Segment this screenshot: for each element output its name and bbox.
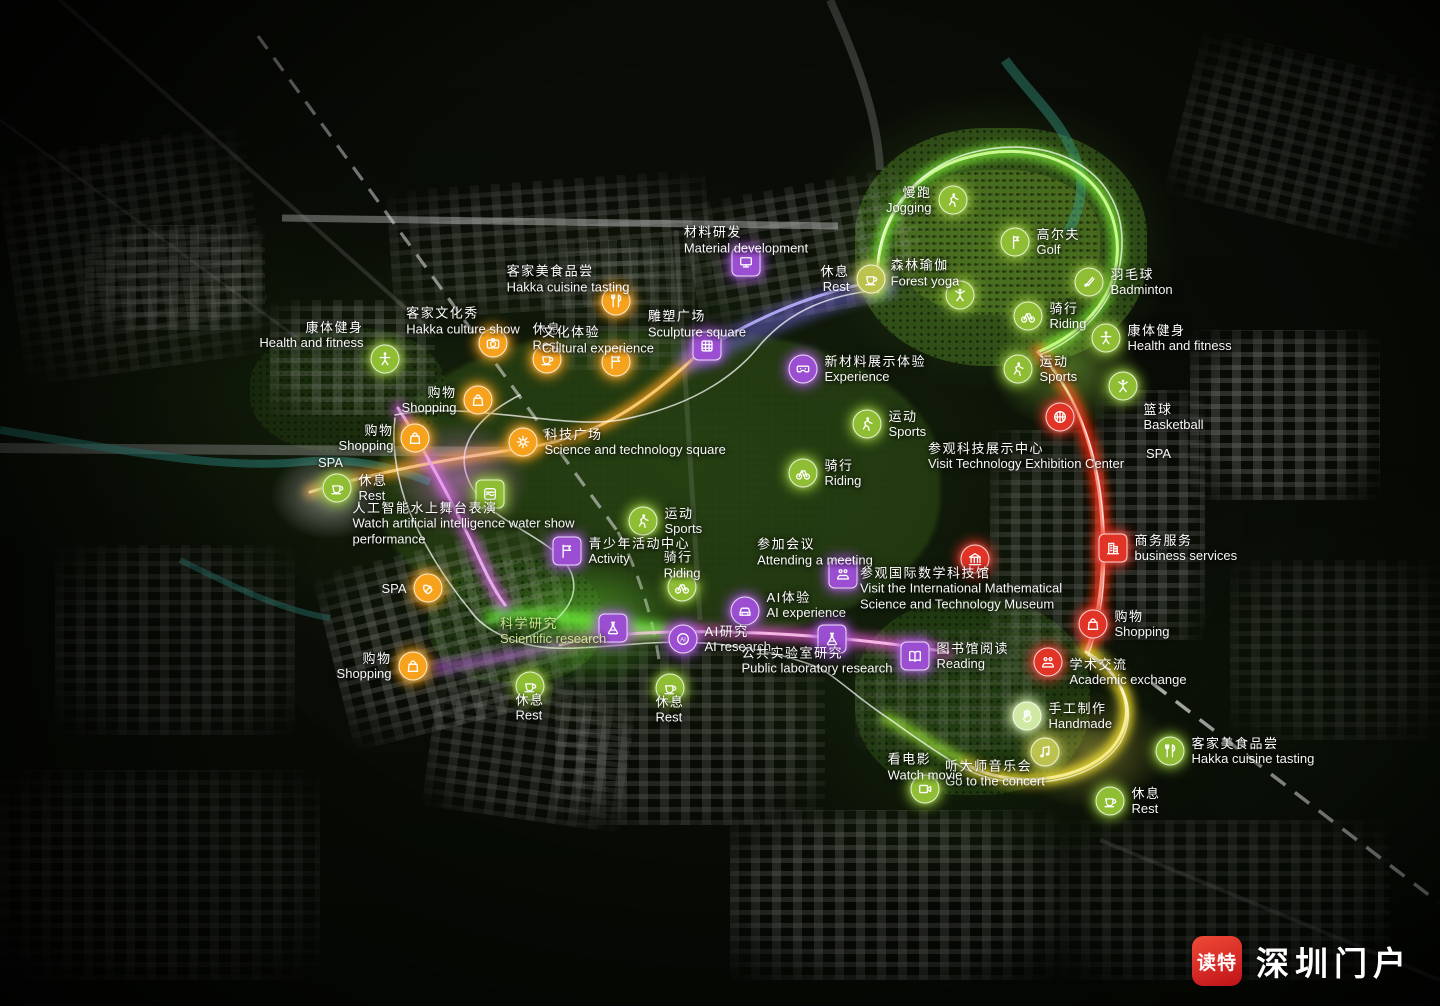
site-name-text: 深圳门户	[1256, 937, 1412, 985]
poi-label: 看电影Watch movie	[888, 752, 963, 783]
poi-riding-center: 骑行Riding	[789, 459, 818, 488]
poi-hakka-cuisine-right: 客家美食品尝Hakka cuisine tasting	[1156, 737, 1185, 766]
golf-flag-icon	[1001, 228, 1030, 257]
poi-label: 购物Shopping	[402, 385, 457, 416]
poi-health-fitness-right: 康体健身Health and fitness	[1092, 324, 1121, 353]
poi-label: 康体健身Health and fitness	[259, 320, 363, 351]
poi-shopping-right: 购物Shopping	[1079, 610, 1108, 639]
poi-label: 参加会议Attending a meeting	[757, 537, 873, 568]
poi-label: 休息Rest	[820, 264, 849, 295]
poi-label: 文化体验Cultural experience	[542, 325, 654, 356]
car-icon	[731, 597, 760, 626]
poi-math-museum: 参观国际数学科技馆Visit the International Mathema…	[961, 545, 990, 574]
poi-shopping-bottom-left: 购物Shopping	[399, 652, 428, 681]
shopping-bag-icon	[464, 386, 493, 415]
poi-label: SPA	[318, 455, 343, 470]
spa-leaf-icon	[414, 574, 443, 603]
poi-label: 商务服务business services	[1135, 533, 1238, 564]
poi-ai-experience: AI体验AI experience	[731, 597, 760, 626]
poi-label: 材料研发Material development	[684, 225, 808, 256]
poi-golf: 高尔夫Golf	[1001, 228, 1030, 257]
poi-label: 休息Rest	[515, 693, 544, 724]
cutlery-icon	[1156, 737, 1185, 766]
poi-label: 休息Rest	[1132, 786, 1161, 817]
poi-spa-right: SPA	[1146, 446, 1171, 461]
svg-text:AI: AI	[680, 637, 686, 643]
runner-icon	[939, 186, 968, 215]
poi-label: 科技广场Science and technology square	[545, 427, 726, 458]
poi-riding-top: 骑行Riding	[1014, 302, 1043, 331]
poi-sculpture-square: 雕塑广场Sculpture square	[693, 332, 722, 361]
poi-basketball: 篮球Basketball	[1046, 403, 1075, 432]
hand-icon	[1013, 702, 1042, 731]
poi-label: 新材料展示体验Experience	[825, 354, 927, 385]
shopping-bag-icon	[1079, 610, 1108, 639]
poi-forest-yoga: 森林瑜伽Forest yoga	[946, 281, 975, 310]
app-badge-text: 读特	[1197, 948, 1237, 975]
poi-health-fitness-left: 康体健身Health and fitness	[371, 345, 400, 374]
poi-dancer	[1109, 372, 1138, 401]
dancer-icon	[1109, 372, 1138, 401]
poi-reading: 图书馆阅读Reading	[901, 642, 930, 671]
poi-label: 科学研究Scientific research	[500, 616, 606, 647]
poi-markers-layer: 慢跑Jogging高尔夫Golf森林瑜伽Forest yoga羽毛球Badmin…	[0, 0, 1440, 1006]
poi-cultural-experience: 文化体验Cultural experience	[602, 348, 631, 377]
dutenews-logo-icon: 读特	[1192, 936, 1242, 986]
poi-academic-exchange: 学术交流Academic exchange	[1034, 648, 1063, 677]
poi-label: 参观科技展示中心Visit Technology Exhibition Cent…	[928, 441, 1124, 472]
poi-scientific-research: 科学研究Scientific research	[500, 616, 606, 647]
shuttlecock-icon	[1075, 268, 1104, 297]
poi-handmade: 手工制作Handmade	[1013, 702, 1042, 731]
poi-label: 森林瑜伽Forest yoga	[891, 258, 960, 289]
poi-shopping-left-lower: 购物Shopping	[401, 424, 430, 453]
poi-label: 慢跑Jogging	[886, 185, 932, 216]
poi-rest-bottom-left: 休息Rest	[516, 672, 545, 701]
poi-rest-bottom-right: 休息Rest	[1096, 787, 1125, 816]
sports-icon	[1004, 355, 1033, 384]
poi-shopping-left-upper: 购物Shopping	[464, 386, 493, 415]
poi-label: 篮球Basketball	[1144, 402, 1204, 433]
basketball-icon	[1046, 403, 1075, 432]
shopping-bag-icon	[401, 424, 430, 453]
poi-rest-left: 休息Rest	[323, 474, 352, 503]
fitness-icon	[1092, 324, 1121, 353]
poi-science-square: 科技广场Science and technology square	[509, 428, 538, 457]
sports-icon	[853, 410, 882, 439]
poi-hakka-culture-show: 客家文化秀Hakka culture show	[479, 329, 508, 358]
poi-sports-lower: 运动Sports	[629, 507, 658, 536]
poi-sports-center: 运动Sports	[853, 410, 882, 439]
poi-visit-tech-center: 参观科技展示中心Visit Technology Exhibition Cent…	[928, 441, 1124, 472]
ai-brain-icon: AI	[669, 625, 698, 654]
poi-spa-bottom: SPA	[414, 574, 443, 603]
poi-label: 羽毛球Badminton	[1111, 267, 1173, 298]
poi-riding-lower: 骑行Riding	[668, 573, 697, 602]
night-planning-map: 慢跑Jogging高尔夫Golf森林瑜伽Forest yoga羽毛球Badmin…	[0, 0, 1440, 1006]
poi-label: 骑行Riding	[1050, 301, 1087, 332]
poi-rest-center-bottom: 休息Rest	[656, 674, 685, 703]
poi-experience-materials: 新材料展示体验Experience	[789, 355, 818, 384]
poi-label: 雕塑广场Sculpture square	[648, 309, 746, 340]
bicycle-icon	[789, 459, 818, 488]
poi-water-show: 人工智能水上舞台表演Watch artificial intelligence …	[476, 480, 505, 509]
poi-label: 参观国际数学科技馆Visit the International Mathema…	[860, 566, 1090, 612]
gear-icon	[509, 428, 538, 457]
poi-hakka-cuisine-top: 客家美食品尝Hakka cuisine tasting	[602, 287, 631, 316]
poi-rest-top: 休息Rest	[857, 265, 886, 294]
poi-label: 休息Rest	[655, 695, 684, 726]
book-icon	[901, 642, 930, 671]
rest-cup-icon	[1096, 787, 1125, 816]
poi-label: 学术交流Academic exchange	[1070, 657, 1187, 688]
rest-cup-icon	[323, 474, 352, 503]
poi-label: 购物Shopping	[339, 423, 394, 454]
poi-badminton: 羽毛球Badminton	[1075, 268, 1104, 297]
poi-watch-movie: 看电影Watch movie	[911, 775, 940, 804]
site-watermark: 读特 深圳门户	[1192, 936, 1412, 986]
bicycle-icon	[1014, 302, 1043, 331]
sports-icon	[629, 507, 658, 536]
poi-ai-research: AIAI研究AI research	[669, 625, 698, 654]
fitness-icon	[371, 345, 400, 374]
poi-label: 运动Sports	[665, 506, 703, 537]
poi-spa-left: SPA	[318, 455, 343, 470]
poi-label: 公共实验室研究Public laboratory research	[741, 646, 892, 677]
poi-label: 客家美食品尝Hakka cuisine tasting	[507, 264, 630, 295]
shopping-bag-icon	[399, 652, 428, 681]
poi-label: 客家文化秀Hakka culture show	[406, 306, 519, 337]
poi-sports-right: 运动Sports	[1004, 355, 1033, 384]
poi-label: 图书馆阅读Reading	[937, 641, 1010, 672]
poi-public-lab: 公共实验室研究Public laboratory research	[818, 625, 847, 654]
poi-label: 客家美食品尝Hakka cuisine tasting	[1192, 736, 1315, 767]
poi-label: SPA	[1146, 446, 1171, 461]
poi-label: 骑行Riding	[825, 458, 862, 489]
rest-cup-icon	[857, 265, 886, 294]
poi-business-services: 商务服务business services	[1099, 534, 1128, 563]
poi-concert: 听大师音乐会Go to the concert	[1031, 738, 1060, 767]
poi-label: AI体验AI experience	[767, 590, 847, 621]
poi-label: 休息Rest	[359, 473, 388, 504]
poi-label: 购物Shopping	[1115, 609, 1170, 640]
poi-material-development: 材料研发Material development	[732, 248, 761, 277]
poi-label: 手工制作Handmade	[1049, 701, 1113, 732]
poi-label: 青少年活动中心Activity	[589, 536, 691, 567]
poi-jogging: 慢跑Jogging	[939, 186, 968, 215]
poi-label: 运动Sports	[889, 409, 927, 440]
poi-attending-meeting: 参加会议Attending a meeting	[829, 560, 858, 589]
poi-label: 人工智能水上舞台表演Watch artificial intelligence …	[353, 501, 588, 547]
meeting-icon	[1034, 648, 1063, 677]
vr-goggles-icon	[789, 355, 818, 384]
poi-label: 运动Sports	[1040, 354, 1078, 385]
poi-label: 康体健身Health and fitness	[1128, 323, 1232, 354]
building-icon	[1099, 534, 1128, 563]
poi-label: SPA	[381, 580, 406, 595]
poi-label: 高尔夫Golf	[1037, 227, 1081, 258]
poi-label: 购物Shopping	[337, 651, 392, 682]
